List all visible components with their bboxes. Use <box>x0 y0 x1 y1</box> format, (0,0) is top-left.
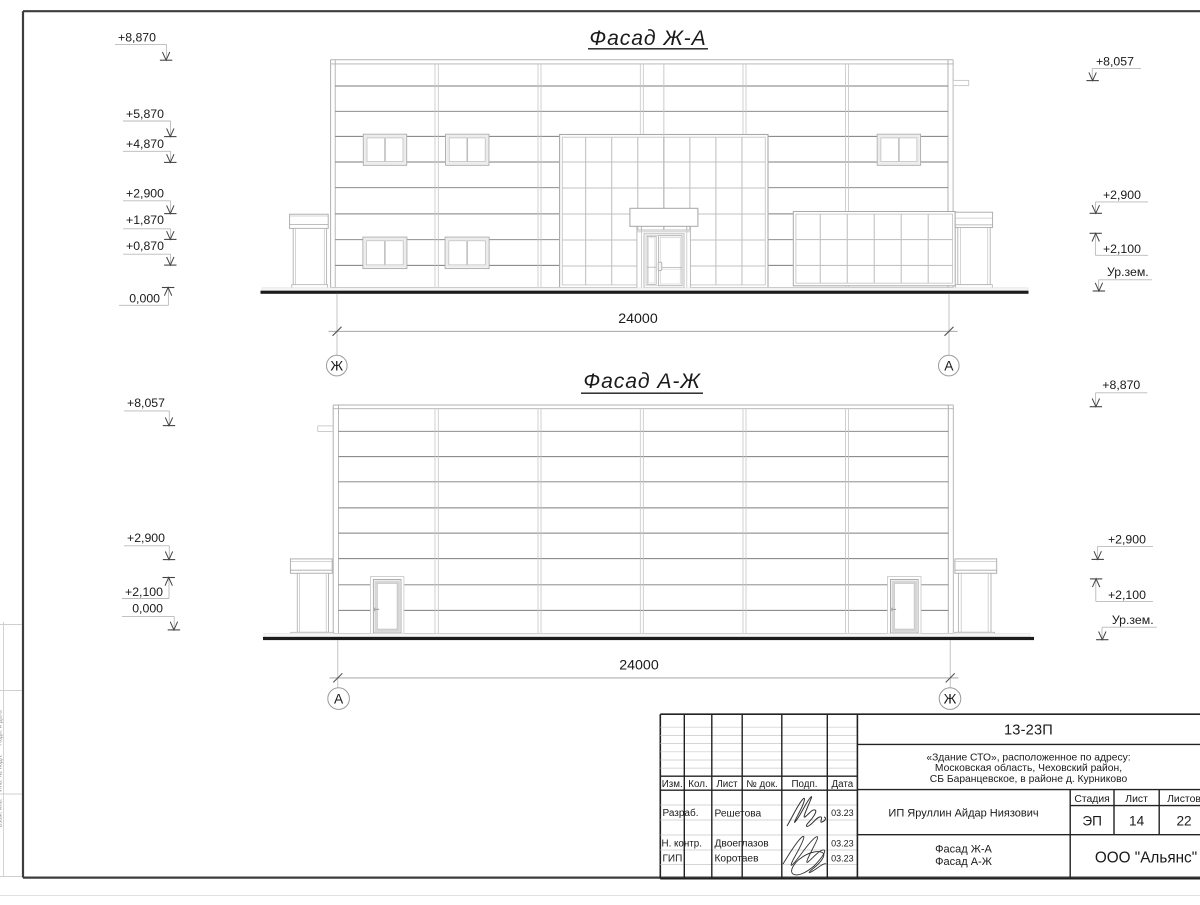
svg-text:Коротаев: Коротаев <box>715 854 759 865</box>
svg-text:22: 22 <box>1176 813 1191 828</box>
svg-text:0,000: 0,000 <box>129 291 160 305</box>
svg-text:ИП Яруллин Айдар Ниязович: ИП Яруллин Айдар Ниязович <box>888 808 1038 820</box>
svg-text:Изм.: Изм. <box>662 779 683 790</box>
svg-text:14: 14 <box>1129 813 1145 828</box>
svg-text:Ж: Ж <box>330 359 343 374</box>
svg-text:А: А <box>334 692 344 707</box>
svg-text:Инв. № подл.: Инв. № подл. <box>0 754 4 792</box>
svg-text:03.23: 03.23 <box>831 853 854 863</box>
svg-text:+4,870: +4,870 <box>126 137 164 151</box>
svg-text:+0,870: +0,870 <box>126 239 164 253</box>
svg-text:Ж: Ж <box>944 692 957 707</box>
svg-text:«Здание СТО», расположенное по: «Здание СТО», расположенное по адресу: <box>926 753 1130 764</box>
svg-text:03.23: 03.23 <box>831 839 854 849</box>
svg-text:Ур.зем.: Ур.зем. <box>1112 613 1154 627</box>
svg-text:Ур.зем.: Ур.зем. <box>1107 265 1149 279</box>
svg-text:Листов: Листов <box>1167 794 1200 805</box>
svg-text:Фасад Ж-А: Фасад Ж-А <box>935 843 992 855</box>
svg-text:+8,870: +8,870 <box>118 30 156 44</box>
svg-text:Двоеглазов: Двоеглазов <box>715 839 769 850</box>
svg-text:Фасад А-Ж: Фасад А-Ж <box>935 856 992 868</box>
svg-text:Дата: Дата <box>832 779 854 790</box>
svg-text:+2,100: +2,100 <box>1108 588 1146 602</box>
svg-text:+2,900: +2,900 <box>1108 532 1146 546</box>
svg-text:+8,057: +8,057 <box>127 396 165 410</box>
svg-text:ГИП: ГИП <box>663 854 683 865</box>
svg-text:Фасад Ж-А: Фасад Ж-А <box>589 27 706 50</box>
svg-text:03.23: 03.23 <box>831 808 854 818</box>
svg-text:Разраб.: Разраб. <box>663 807 699 819</box>
svg-text:Подп.: Подп. <box>791 779 817 790</box>
svg-text:+2,900: +2,900 <box>1103 188 1141 202</box>
svg-text:Н. контр.: Н. контр. <box>662 839 702 850</box>
svg-text:+8,870: +8,870 <box>1102 378 1140 392</box>
svg-text:+1,870: +1,870 <box>126 213 164 227</box>
svg-text:+5,870: +5,870 <box>126 107 164 121</box>
svg-text:Фасад А-Ж: Фасад А-Ж <box>583 370 701 393</box>
svg-text:+2,100: +2,100 <box>1103 242 1141 256</box>
svg-text:Стадия: Стадия <box>1074 794 1109 805</box>
svg-text:Лист: Лист <box>1125 794 1148 805</box>
svg-text:№ док.: № док. <box>746 779 777 790</box>
svg-text:24000: 24000 <box>618 311 658 327</box>
svg-text:+2,900: +2,900 <box>127 531 165 545</box>
svg-text:ООО "Альянс": ООО "Альянс" <box>1095 850 1197 867</box>
svg-text:+2,900: +2,900 <box>126 187 164 201</box>
svg-text:Взам. инв.: Взам. инв. <box>0 798 4 827</box>
svg-text:13-23П: 13-23П <box>1004 723 1053 739</box>
svg-text:СБ Баранцевское, в районе д. К: СБ Баранцевское, в районе д. Курниково <box>930 774 1128 785</box>
svg-text:24000: 24000 <box>619 658 659 674</box>
svg-text:+2,100: +2,100 <box>125 585 163 599</box>
svg-text:+8,057: +8,057 <box>1096 55 1134 69</box>
svg-text:Лист: Лист <box>716 779 738 790</box>
svg-text:А: А <box>944 359 954 374</box>
svg-text:Кол.: Кол. <box>688 779 707 790</box>
svg-text:Решетова: Решетова <box>715 809 762 820</box>
svg-text:0,000: 0,000 <box>132 602 163 616</box>
svg-text:Подп. и дата: Подп. и дата <box>0 710 4 746</box>
svg-text:Московская область, Чеховский: Московская область, Чеховский район, <box>935 762 1122 774</box>
svg-text:ЭП: ЭП <box>1082 813 1102 828</box>
